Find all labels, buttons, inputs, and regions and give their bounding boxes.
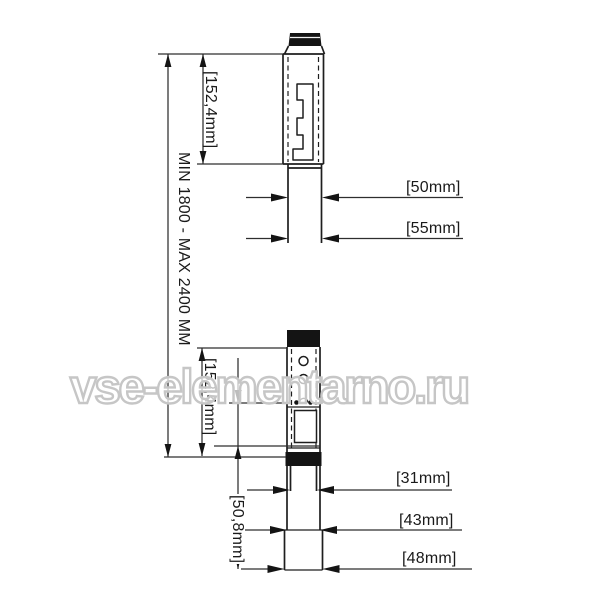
adjustment-slot [295,411,317,443]
tube-width-50-label: [50mm] [406,180,461,197]
upper-pole-view [283,33,325,243]
upper-rail-height-label: [152,4mm] [201,71,218,148]
bottom-section-height-label: [50,8mm] [228,494,245,564]
inner-tube-width-label: [31mm] [396,471,451,488]
watermark: vse-elementarno.ru [70,360,468,415]
upper-collar [287,330,320,347]
middle-tube-width-label: [43mm] [399,513,454,530]
technical-drawing-page: MIN 1800 - MAX 2400 MM [152,4mm] [50mm] … [0,0,600,600]
tube-width-55-label: [55mm] [406,221,461,238]
pole-mount-drawing [0,0,600,600]
top-cap [289,33,322,46]
outer-tube-width-label: [48mm] [402,551,457,568]
rail-profile [293,84,313,160]
overall-height-label: MIN 1800 - MAX 2400 MM [174,152,191,346]
lower-collar [286,452,322,466]
